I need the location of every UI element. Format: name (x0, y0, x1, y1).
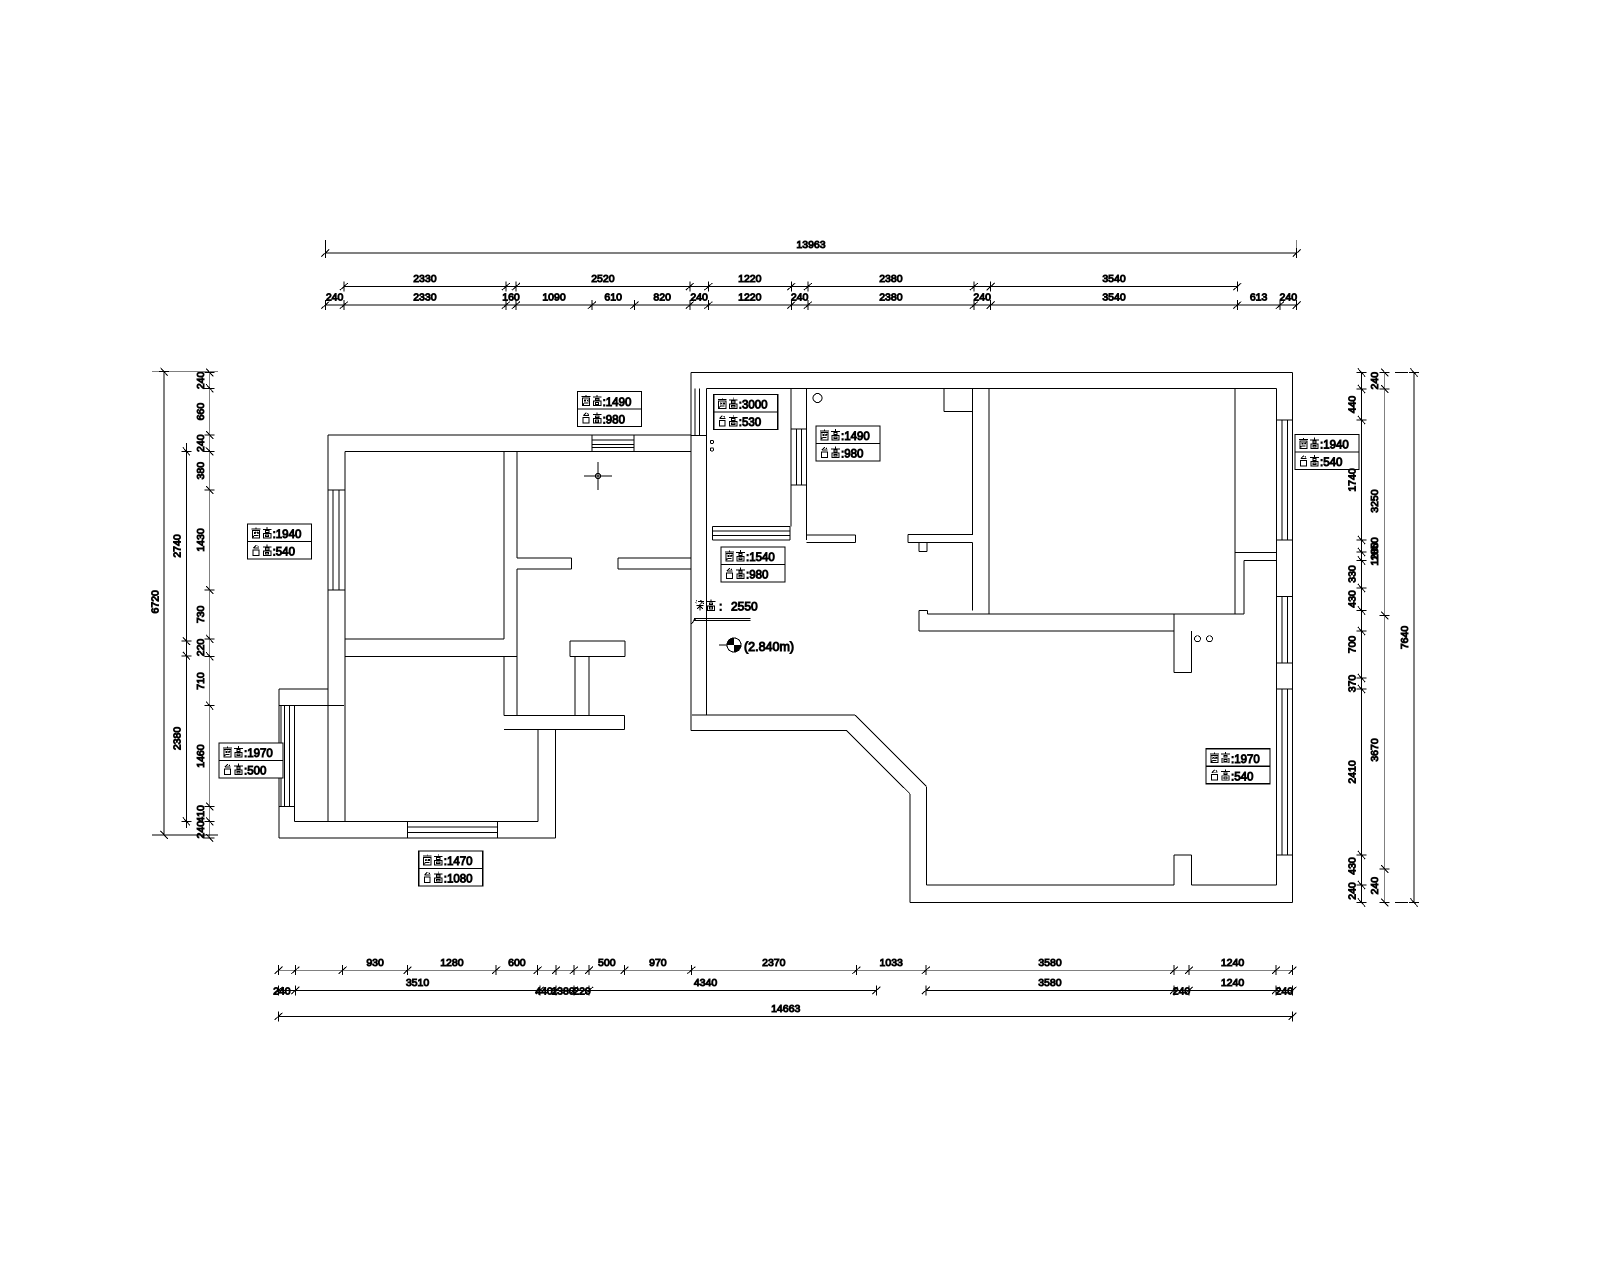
svg-text:240: 240 (1276, 985, 1294, 997)
svg-text:1460: 1460 (195, 744, 207, 768)
svg-text:1033: 1033 (880, 957, 904, 969)
svg-text:2410: 2410 (1346, 760, 1358, 784)
svg-text::980: :980 (841, 449, 863, 461)
svg-text::540: :540 (1231, 771, 1253, 783)
svg-text::1940: :1940 (1320, 440, 1349, 452)
svg-text:2330: 2330 (413, 273, 437, 285)
svg-text:1220: 1220 (738, 273, 762, 285)
svg-text:430: 430 (1346, 590, 1358, 608)
svg-text::: : (719, 600, 722, 614)
svg-text:2380: 2380 (879, 292, 903, 304)
svg-text:13963: 13963 (796, 239, 825, 251)
svg-text:440: 440 (535, 985, 553, 997)
svg-text:1090: 1090 (542, 292, 566, 304)
svg-text:613: 613 (1250, 292, 1268, 304)
svg-text:240: 240 (973, 292, 991, 304)
svg-text:240: 240 (195, 821, 207, 839)
svg-text:1430: 1430 (195, 528, 207, 552)
svg-text::980: :980 (746, 570, 768, 582)
svg-text:1280: 1280 (1369, 542, 1381, 566)
svg-text:7640: 7640 (1399, 626, 1411, 650)
svg-text:3580: 3580 (1038, 957, 1062, 969)
svg-text:820: 820 (653, 292, 671, 304)
svg-text::980: :980 (603, 414, 625, 426)
svg-text:2520: 2520 (591, 273, 615, 285)
svg-text:220: 220 (195, 639, 207, 657)
svg-text:240: 240 (273, 985, 291, 997)
svg-text:1240: 1240 (1221, 977, 1245, 989)
svg-text:4340: 4340 (694, 977, 718, 989)
svg-text:3540: 3540 (1102, 273, 1126, 285)
svg-text:2550: 2550 (731, 600, 758, 614)
svg-text:3250: 3250 (1369, 489, 1381, 513)
svg-text:160: 160 (502, 292, 520, 304)
svg-text:240: 240 (326, 292, 344, 304)
svg-text:3510: 3510 (406, 977, 430, 989)
svg-text:3670: 3670 (1369, 738, 1381, 762)
svg-text:240: 240 (791, 292, 809, 304)
svg-text::540: :540 (1320, 457, 1342, 469)
svg-text:1280: 1280 (440, 957, 464, 969)
svg-text::530: :530 (739, 417, 761, 429)
svg-text:3580: 3580 (1038, 977, 1062, 989)
svg-text:14663: 14663 (771, 1003, 800, 1015)
svg-text::1490: :1490 (603, 397, 632, 409)
svg-text::3000: :3000 (739, 400, 768, 412)
svg-text::1470: :1470 (444, 856, 473, 868)
svg-text:440: 440 (1346, 396, 1358, 414)
svg-text::540: :540 (273, 547, 295, 559)
svg-text::1080: :1080 (444, 874, 473, 886)
svg-text:610: 610 (604, 292, 622, 304)
svg-text:240: 240 (1369, 372, 1381, 390)
svg-text:410: 410 (195, 805, 207, 823)
svg-text:240: 240 (195, 371, 207, 389)
svg-text:6720: 6720 (150, 590, 162, 614)
svg-text:430: 430 (1346, 857, 1358, 875)
svg-text:970: 970 (649, 957, 667, 969)
svg-text:1380: 1380 (551, 985, 575, 997)
svg-text::1490: :1490 (841, 431, 870, 443)
svg-text:240: 240 (195, 434, 207, 452)
svg-text:370: 370 (1346, 675, 1358, 693)
svg-text:1740: 1740 (1346, 468, 1358, 492)
svg-text:2740: 2740 (172, 534, 184, 558)
svg-text:240: 240 (1346, 882, 1358, 900)
svg-text:2380: 2380 (879, 273, 903, 285)
svg-text:220: 220 (573, 985, 591, 997)
svg-text:710: 710 (195, 672, 207, 690)
svg-text:930: 930 (366, 957, 384, 969)
svg-text:700: 700 (1346, 636, 1358, 654)
svg-text::1970: :1970 (1231, 754, 1260, 766)
svg-text:330: 330 (1346, 565, 1358, 583)
svg-text:730: 730 (195, 605, 207, 623)
svg-text:(2.840m): (2.840m) (744, 640, 794, 654)
svg-text::1540: :1540 (746, 552, 775, 564)
svg-text:2370: 2370 (762, 957, 786, 969)
svg-text:240: 240 (1369, 877, 1381, 895)
svg-text:240: 240 (690, 292, 708, 304)
svg-text:660: 660 (195, 403, 207, 421)
svg-text:600: 600 (508, 957, 526, 969)
svg-text::1970: :1970 (244, 748, 273, 760)
svg-text:500: 500 (598, 957, 616, 969)
svg-text:240: 240 (1173, 985, 1191, 997)
svg-text:1240: 1240 (1221, 957, 1245, 969)
svg-text:380: 380 (195, 462, 207, 480)
svg-text:1220: 1220 (738, 292, 762, 304)
svg-text:240: 240 (1280, 292, 1298, 304)
svg-text:3540: 3540 (1102, 292, 1126, 304)
svg-text::500: :500 (244, 766, 266, 778)
svg-text:2330: 2330 (413, 292, 437, 304)
svg-text:2380: 2380 (172, 727, 184, 751)
svg-text::1940: :1940 (273, 529, 302, 541)
